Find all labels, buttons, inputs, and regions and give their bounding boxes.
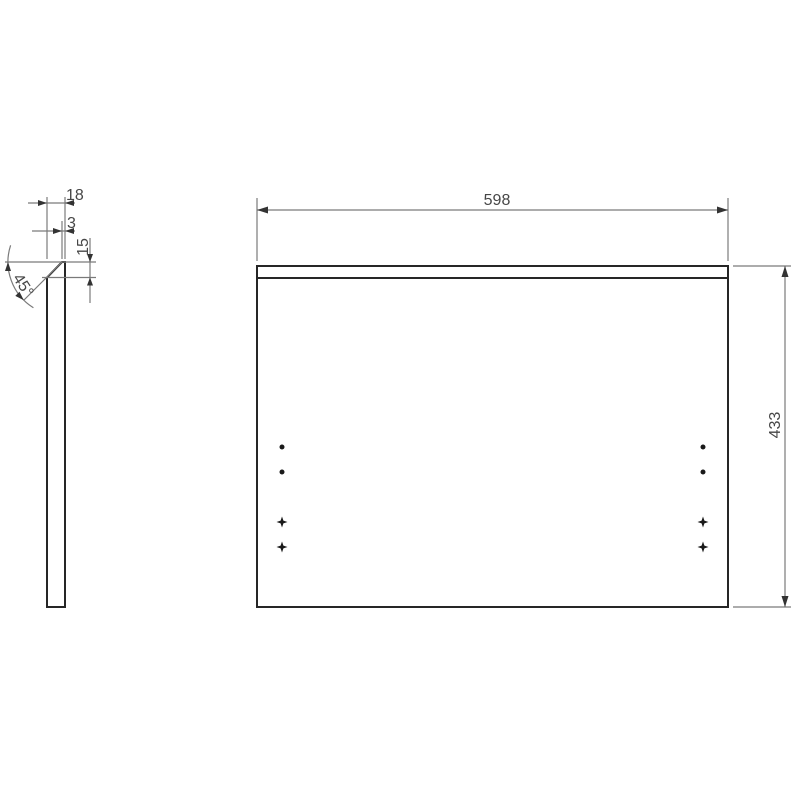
dim-45-label: 45°: [9, 271, 36, 301]
technical-drawing-page: 18 3 15 45° 598 433: [0, 0, 800, 800]
hole-dot: [280, 470, 285, 475]
dim-433-label: 433: [767, 412, 784, 439]
dim-18-arrow-left: [38, 200, 47, 206]
hole-dot: [701, 470, 706, 475]
dim-433-arrow-bottom: [782, 596, 789, 607]
side-view-part-outline: [47, 262, 65, 607]
dim-15-label: 15: [75, 238, 92, 256]
hole-dot: [280, 445, 285, 450]
dim-18-label: 18: [66, 187, 84, 204]
dim-433-arrow-top: [782, 266, 789, 277]
dim-3-label: 3: [67, 215, 76, 232]
front-view-part-outline: [257, 266, 728, 607]
dim-598-label: 598: [484, 192, 511, 209]
hole-dot: [701, 445, 706, 450]
dim-45-arrow-top: [5, 262, 11, 271]
dim-598-arrow-left: [257, 207, 268, 214]
dim-3-arrow-left: [53, 228, 62, 234]
dim-15-arrow-bottom: [87, 278, 93, 286]
dim-598-arrow-right: [717, 207, 728, 214]
drawing-canvas: 18 3 15 45° 598 433: [0, 0, 800, 800]
